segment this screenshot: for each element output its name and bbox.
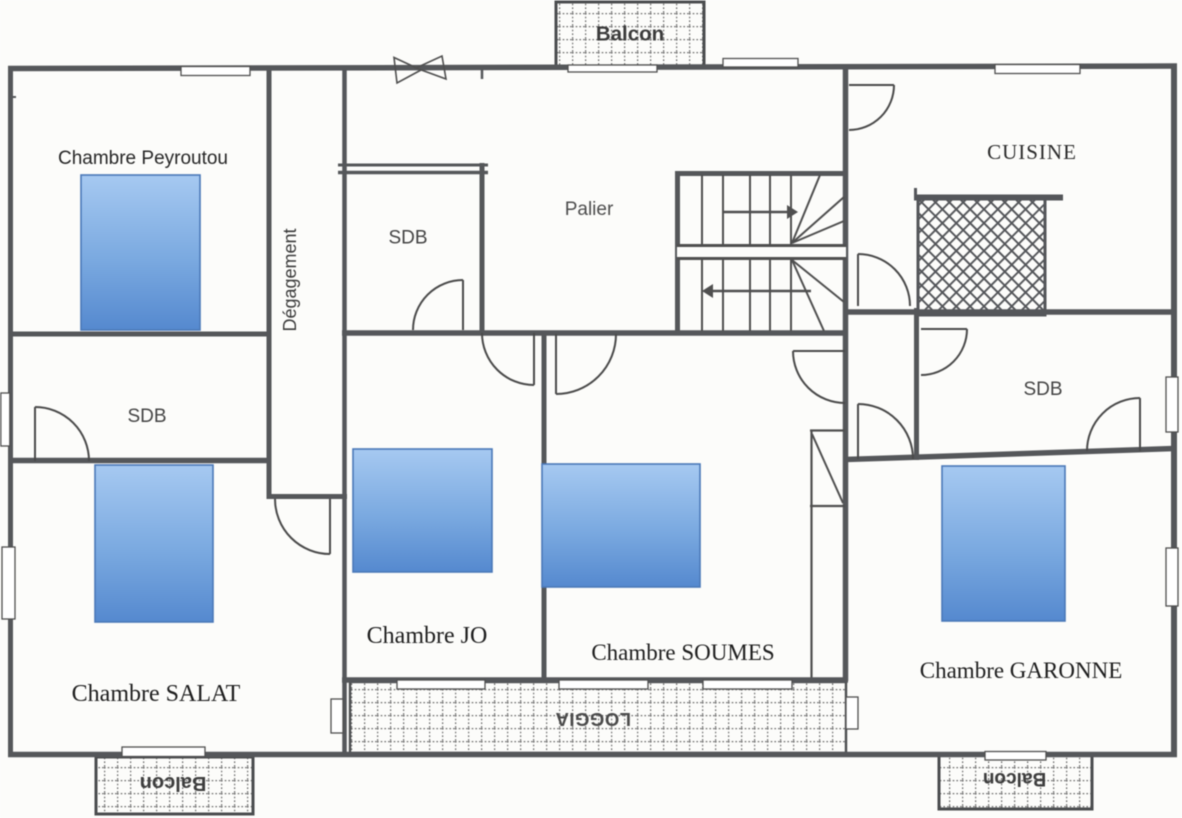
svg-text:Balcon: Balcon [596,23,664,46]
svg-text:Chambre GARONNE: Chambre GARONNE [920,658,1123,683]
svg-text:Chambre JO: Chambre JO [367,623,488,649]
svg-text:Balcon: Balcon [140,772,207,794]
svg-text:Chambre SOUMES: Chambre SOUMES [591,640,774,665]
svg-text:SDB: SDB [127,406,166,427]
svg-text:Palier: Palier [565,199,614,220]
svg-text:Chambre Peyroutou: Chambre Peyroutou [58,148,228,169]
svg-text:SDB: SDB [1023,379,1062,400]
svg-text:Dégagement: Dégagement [280,228,300,331]
svg-text:Balcon: Balcon [983,768,1046,789]
svg-text:LOGGIA: LOGGIA [555,709,631,730]
svg-text:SDB: SDB [388,228,427,249]
svg-text:Chambre SALAT: Chambre SALAT [72,681,241,707]
svg-text:CUISINE: CUISINE [987,140,1077,164]
